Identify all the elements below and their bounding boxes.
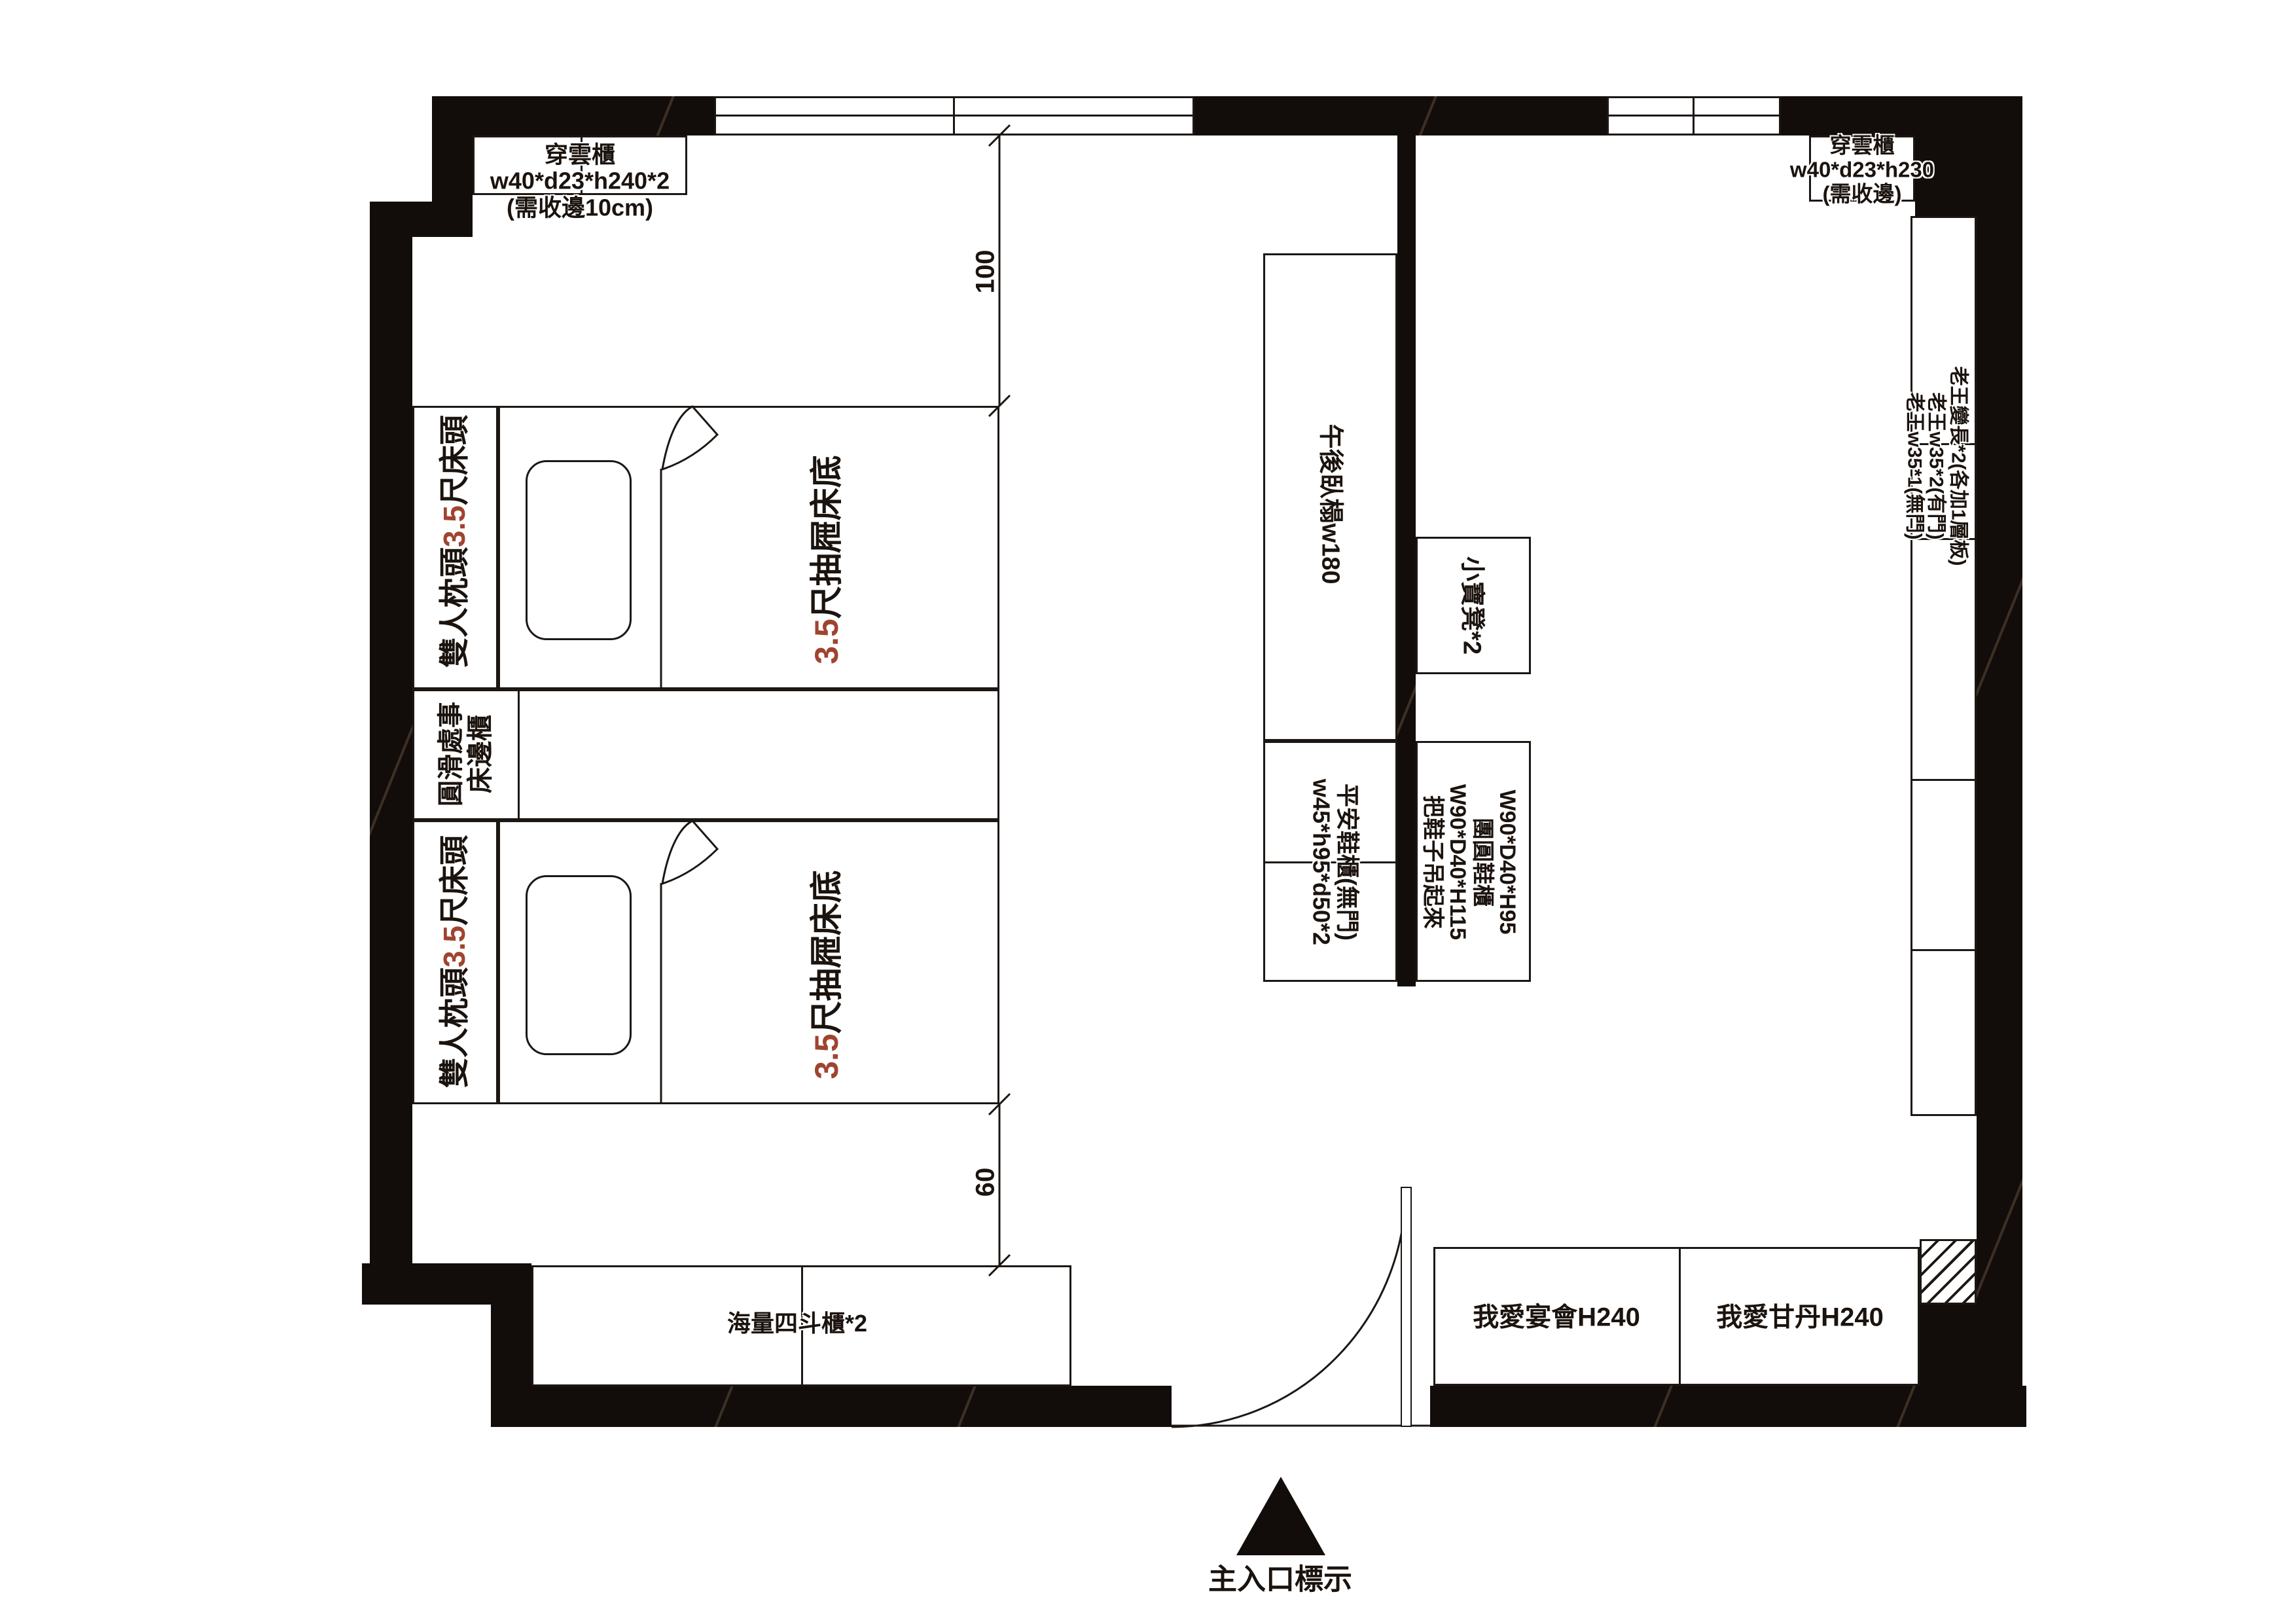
nightstand-line: 圓滑處事 — [437, 702, 466, 806]
bed-size: 3.5 — [808, 619, 845, 664]
bed-2-label: 3.5尺抽屜床底 — [808, 870, 845, 1079]
dresser-label: 海量四斗櫃*2 — [727, 1310, 867, 1337]
headboard-1-label: 雙人枕頭3.5尺床頭 — [438, 415, 472, 668]
bed-1-blanket-fold-icon — [662, 406, 717, 469]
linework-overlay — [0, 0, 2296, 1624]
tall-cabinet-label: 老王w35*1(無門) 老王w35*2(有門) 老王變長*2(各加1層板) — [1903, 366, 1969, 566]
closet-name: 穿雲櫃 — [1790, 134, 1934, 158]
floor-plan: 穿雲櫃 w40*d23*h240*2 (需收邊10cm) 穿雲櫃 w40*d23… — [0, 0, 2296, 1624]
closet-top-left-label: 穿雲櫃 w40*d23*h240*2 (需收邊10cm) — [490, 142, 670, 221]
dimension-label-bottom: 60 — [971, 1168, 1001, 1197]
entrance-triangle-icon — [1236, 1477, 1325, 1555]
closet-top-right-label: 穿雲櫃 w40*d23*h230 (需收邊) — [1790, 134, 1934, 207]
wardrobe-right-label: 我愛甘丹H240 — [1716, 1303, 1884, 1333]
entrance-label: 主入口標示 — [1208, 1563, 1352, 1595]
headboard-size: 3.5 — [437, 926, 471, 967]
tall-cabinet-line: 老王變長*2(各加1層板) — [1947, 366, 1969, 566]
closet-size: w40*d23*h240*2 — [490, 168, 670, 194]
closet-note: (需收邊10cm) — [490, 194, 670, 221]
shoe-cabinet-line: W90*D40*H95 — [1495, 784, 1520, 940]
shoe-cabinet-line: 平安鞋櫃(無門) — [1334, 779, 1360, 945]
wardrobe-left-label: 我愛宴會H240 — [1473, 1303, 1640, 1333]
headboard-size: 3.5 — [437, 505, 471, 547]
bed-2-blanket-fold-icon — [662, 821, 717, 884]
shoe-cabinet-left-label: w45*h95*d50*2 平安鞋櫃(無門) — [1308, 779, 1361, 945]
bed-text: 尺抽屜床底 — [808, 870, 845, 1034]
headboard-text: 雙人枕頭 — [437, 967, 471, 1088]
stool-label: 小寶凳*2 — [1458, 556, 1486, 655]
shoe-cabinet-line: 把鞋子吊起來 — [1420, 784, 1445, 940]
closet-size: w40*d23*h230 — [1790, 158, 1934, 183]
bed-1-label: 3.5尺抽屜床底 — [808, 455, 845, 664]
shoe-cabinet-line: w45*h95*d50*2 — [1308, 779, 1334, 945]
door-leaf — [1401, 1187, 1412, 1427]
nightstand-line: 床邊櫃 — [466, 702, 495, 806]
closet-note: (需收邊) — [1790, 182, 1934, 206]
closet-name: 穿雲櫃 — [490, 142, 670, 168]
headboard-2-label: 雙人枕頭3.5尺床頭 — [438, 835, 472, 1088]
bed-size: 3.5 — [808, 1034, 845, 1079]
shoe-cabinet-line: W90*D40*H115 — [1445, 784, 1470, 940]
headboard-text: 雙人枕頭 — [437, 547, 471, 668]
door-swing-arc — [1172, 1187, 1406, 1427]
headboard-text: 尺床頭 — [437, 415, 471, 505]
bed-text: 尺抽屜床底 — [808, 455, 845, 619]
tall-cabinet-line: 老王w35*2(有門) — [1925, 366, 1947, 566]
tall-cabinet-line: 老王w35*1(無門) — [1903, 366, 1926, 566]
shoe-cabinet-line: 團圓鞋櫃 — [1470, 784, 1495, 940]
dimension-label-top: 100 — [971, 250, 1001, 294]
nightstand-label: 圓滑處事 床邊櫃 — [437, 702, 495, 806]
shoe-cabinet-right-label: 把鞋子吊起來 W90*D40*H115 團圓鞋櫃 W90*D40*H95 — [1420, 784, 1520, 940]
headboard-text: 尺床頭 — [437, 835, 471, 926]
daybed-label: 午後臥榻w180 — [1316, 424, 1344, 585]
